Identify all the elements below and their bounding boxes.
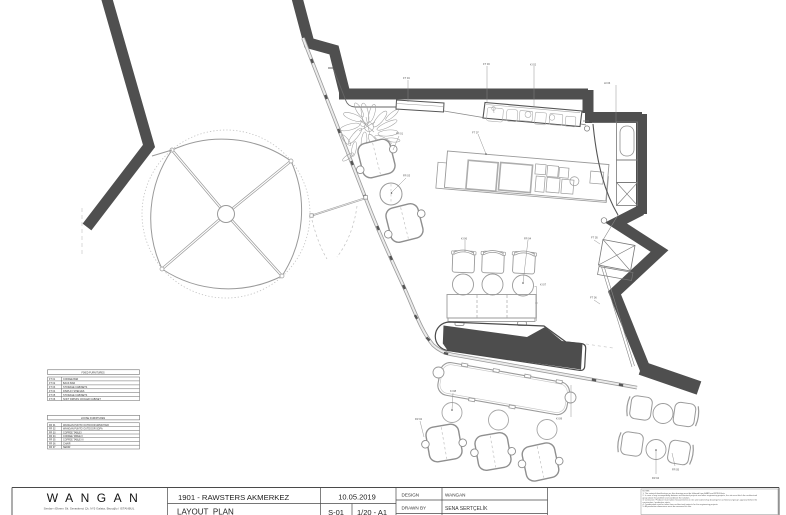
svg-text:FT 04: FT 04 — [49, 390, 56, 393]
svg-text:FT 03: FT 03 — [49, 386, 56, 389]
svg-text:SENA SERTÇELİK: SENA SERTÇELİK — [445, 505, 488, 512]
svg-text:5. All production dimensions m: 5. All production dimensions must be mea… — [643, 505, 692, 508]
svg-text:KI 06: KI 06 — [461, 237, 468, 241]
svg-text:S-01: S-01 — [328, 508, 344, 515]
svg-text:COFFEE TABLE I: COFFEE TABLE I — [63, 431, 82, 434]
svg-text:LAYOUT_PLAN: LAYOUT_PLAN — [177, 508, 234, 515]
svg-text:FT 06: FT 06 — [590, 296, 597, 300]
svg-text:KI 02: KI 02 — [530, 63, 537, 67]
svg-text:HI 06: HI 06 — [604, 81, 611, 85]
svg-text:FR 03: FR 03 — [403, 174, 411, 178]
svg-text:FR 07: FR 07 — [49, 446, 56, 449]
svg-text:WANGAN PUNTO OUTDOOR SOFA: WANGAN PUNTO OUTDOOR SOFA — [63, 428, 103, 431]
svg-text:FR 04: FR 04 — [652, 476, 660, 480]
svg-text:SEDIR: SEDIR — [63, 446, 71, 449]
svg-text:CHAIR: CHAIR — [63, 443, 71, 446]
svg-text:KI 07: KI 07 — [540, 283, 547, 287]
svg-text:DESIGN: DESIGN — [402, 493, 420, 498]
svg-text:SOFT DRINKS COOLER CABINET: SOFT DRINKS COOLER CABINET — [63, 398, 101, 401]
svg-text:WANGAN PUNTO OUTDOOR ARMCHAIR: WANGAN PUNTO OUTDOOR ARMCHAIR — [63, 424, 109, 427]
svg-text:FR 06: FR 06 — [49, 443, 56, 446]
svg-text:DRAWN BY: DRAWN BY — [402, 506, 427, 511]
svg-text:DISPLAY SHELVES: DISPLAY SHELVES — [63, 390, 85, 393]
svg-text:FR 05: FR 05 — [49, 439, 56, 442]
svg-text:FT 04: FT 04 — [403, 76, 410, 80]
svg-text:1901 - RAWSTERS AKMERKEZ: 1901 - RAWSTERS AKMERKEZ — [178, 493, 290, 502]
svg-text:FR 02: FR 02 — [415, 417, 423, 421]
svg-text:FR 02: FR 02 — [49, 428, 56, 431]
svg-text:COFFEE TABLE II: COFFEE TABLE II — [63, 435, 83, 438]
svg-text:1/20 - A1: 1/20 - A1 — [357, 508, 387, 515]
svg-text:FR 05: FR 05 — [672, 468, 680, 472]
svg-text:FT 03: FT 03 — [483, 62, 490, 66]
svg-text:FT 05: FT 05 — [49, 394, 56, 397]
svg-text:KI 08: KI 08 — [450, 389, 457, 393]
svg-text:WANGAN: WANGAN — [445, 493, 466, 498]
svg-text:STORAGE CABINETS: STORAGE CABINETS — [63, 386, 88, 389]
svg-text:FR 01: FR 01 — [49, 424, 56, 427]
svg-text:FIXED FURNITURES: FIXED FURNITURES — [81, 371, 105, 374]
svg-text:Serdar-ı Ekrem Sk. Seraskerci: Serdar-ı Ekrem Sk. Seraskerci Çk. N°5 Ga… — [44, 507, 135, 511]
svg-text:FT 07: FT 07 — [472, 131, 479, 135]
svg-text:FR 03: FR 03 — [49, 431, 56, 434]
svg-text:FT 02: FT 02 — [49, 382, 56, 385]
svg-text:FR 01: FR 01 — [396, 132, 404, 136]
svg-text:STORAGE CABINETS: STORAGE CABINETS — [63, 394, 88, 397]
svg-text:LOOSE FURNITURES: LOOSE FURNITURES — [81, 417, 106, 420]
svg-text:FR 04: FR 04 — [524, 237, 532, 241]
svg-text:10.05.2019: 10.05.2019 — [338, 493, 376, 502]
svg-text:KI 09: KI 09 — [556, 417, 563, 421]
svg-text:FT 01: FT 01 — [49, 378, 56, 381]
svg-text:NOTES: NOTES — [643, 490, 651, 492]
svg-text:FR 04: FR 04 — [49, 435, 56, 438]
svg-text:WANGAN: WANGAN — [47, 491, 146, 505]
svg-text:FT 06: FT 06 — [49, 398, 56, 401]
svg-text:COFFEE TABLE III: COFFEE TABLE III — [63, 439, 84, 442]
svg-text:BACK BAR: BACK BAR — [63, 382, 75, 385]
svg-text:FT 05: FT 05 — [591, 236, 598, 240]
svg-text:COFFEE BAR: COFFEE BAR — [63, 378, 79, 381]
